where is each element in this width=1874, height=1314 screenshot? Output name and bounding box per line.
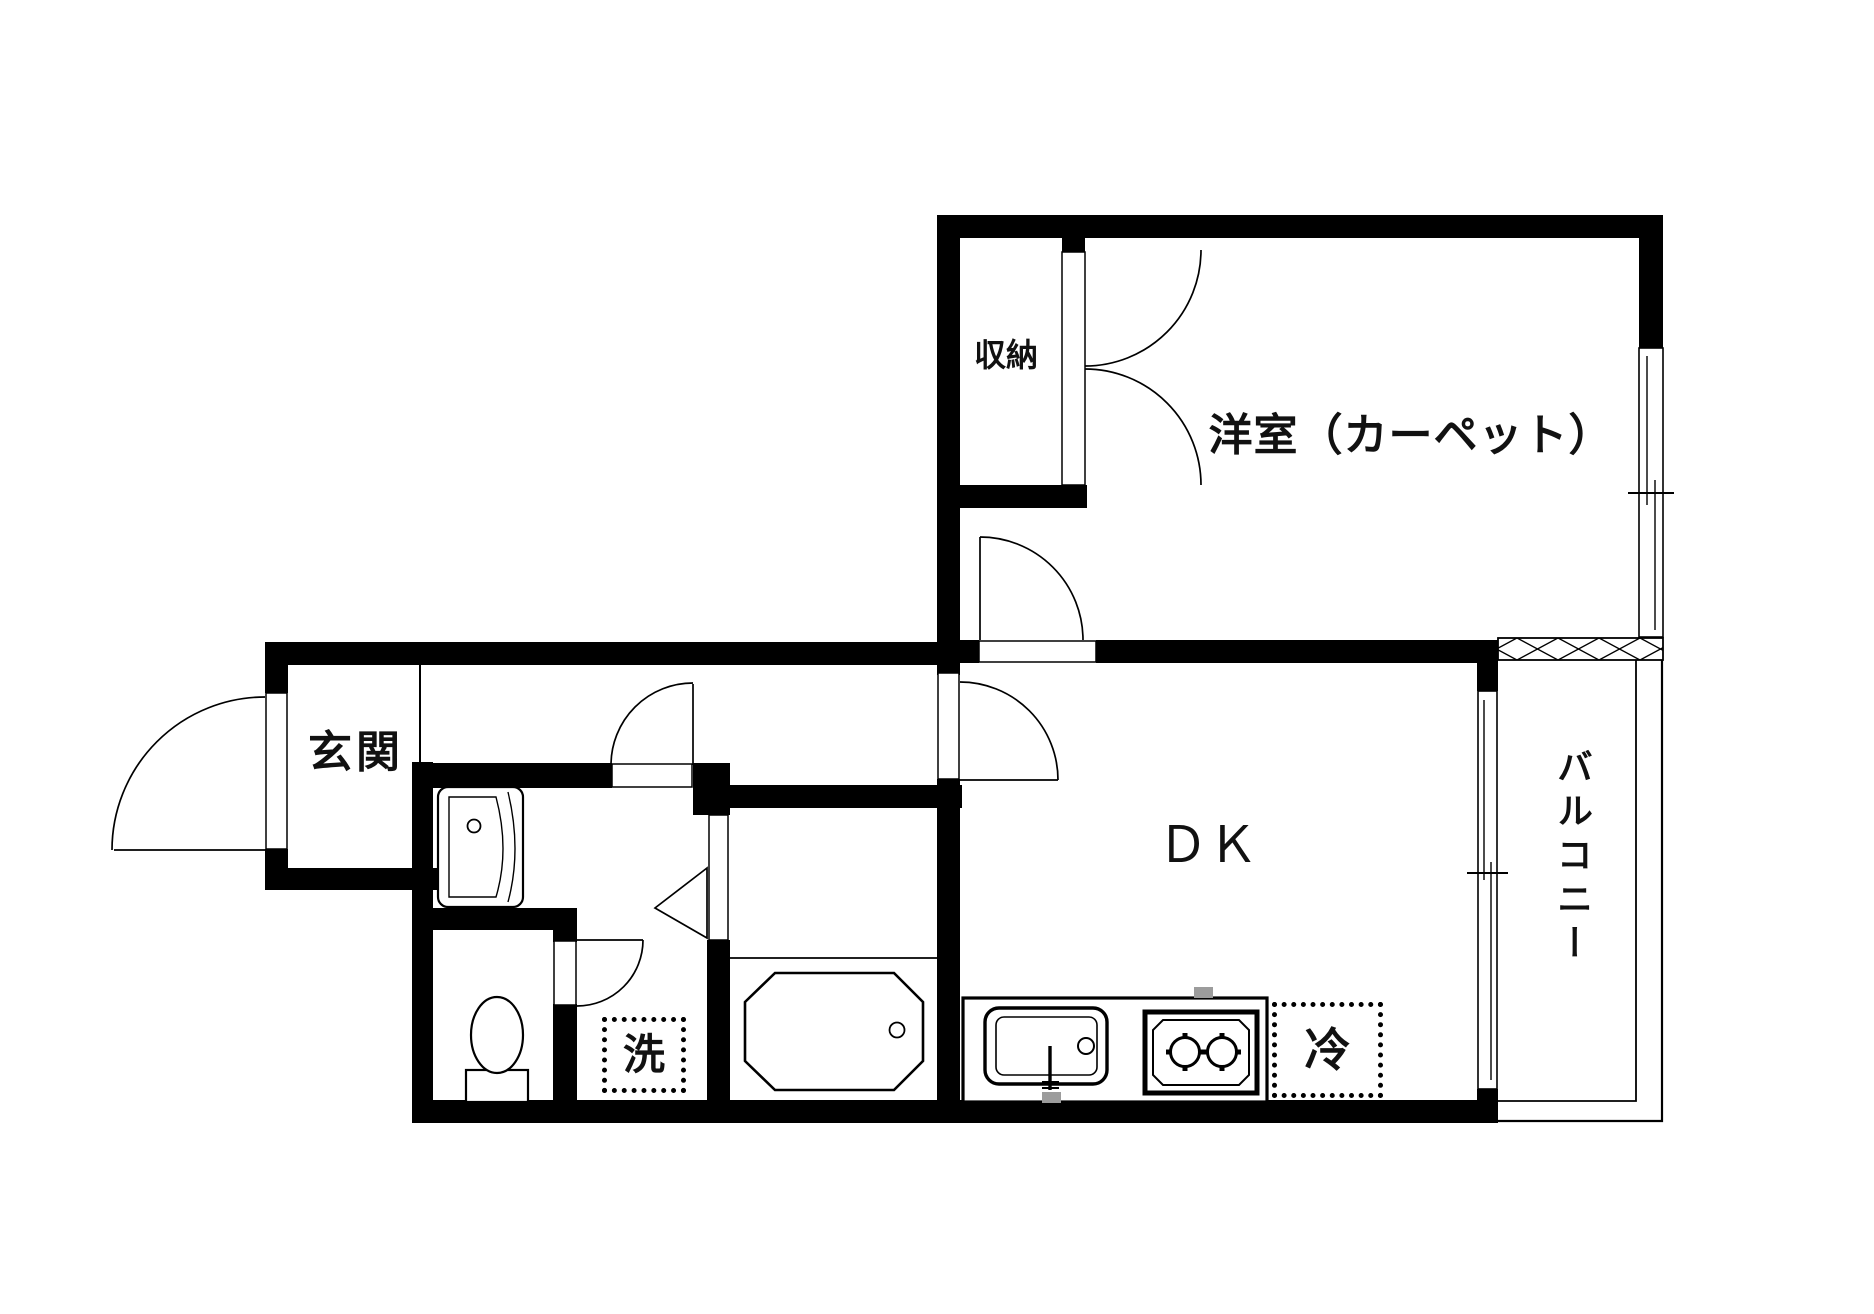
wall-bath-top (730, 785, 962, 808)
wall-hall-top (265, 642, 960, 665)
washer-space-box: 洗 (602, 1017, 686, 1093)
label-balcony: バルコニー (1554, 748, 1590, 968)
partition-hatch (1498, 638, 1663, 660)
wall-entry-left-upper (265, 642, 288, 693)
label-washer: 洗 (623, 1034, 665, 1076)
wall-toilet-right-upper (553, 930, 577, 942)
wall-closet-jamb (1062, 238, 1085, 252)
wall-bath-corner (693, 763, 730, 815)
wall-dk-left-lower (937, 779, 960, 1103)
dk-door (960, 682, 1058, 780)
kitchen-counter (963, 987, 1267, 1103)
wall-south-seg2 (1096, 640, 1498, 663)
wall-washroom-top (433, 763, 612, 788)
vanity-sink (438, 787, 523, 907)
entrance-door (112, 697, 265, 850)
toilet-door-opening (554, 941, 576, 1005)
entry-door-opening (266, 693, 287, 849)
western-dk-door-opening (979, 641, 1096, 662)
dk-entry-opening (938, 673, 959, 779)
wall-upper-left (937, 215, 960, 663)
walls (265, 215, 1663, 1123)
floor-plan-drawing (0, 0, 1874, 1314)
dk-window (1467, 691, 1508, 1089)
floor-plan-canvas: 収納 洋室（カーペット） 玄関 ＤＫ バルコニー 洗 冷 (0, 0, 1874, 1314)
washroom-door (611, 683, 693, 765)
wall-bottom (412, 1100, 1498, 1123)
wall-south-seg1 (960, 640, 979, 663)
wall-closet-bottom (937, 485, 1087, 508)
bath-folding-door (655, 868, 707, 938)
wall-west (412, 762, 433, 1123)
wall-bath-left-lower (707, 940, 730, 1103)
label-storage: 収納 (974, 339, 1038, 371)
closet-double-door (1085, 250, 1201, 485)
label-refrigerator: 冷 (1305, 1027, 1351, 1073)
wall-dk-right-lower (1477, 1089, 1498, 1123)
wall-toilet-right-lower (553, 1004, 577, 1103)
wall-top (937, 215, 1663, 238)
label-dining-kitchen: ＤＫ (1158, 820, 1258, 870)
western-room-door (980, 537, 1083, 640)
western-room-window (1628, 348, 1674, 637)
label-western-room: 洋室（カーペット） (1209, 414, 1614, 458)
wall-dk-right-upper (1477, 660, 1498, 691)
bathtub (745, 973, 923, 1090)
wall-upper-right (1639, 238, 1663, 348)
wall-toilet-top (412, 908, 577, 930)
toilet-door (577, 940, 643, 1006)
label-entrance: 玄関 (308, 731, 404, 775)
refrigerator-space-box: 冷 (1272, 1002, 1383, 1098)
toilet (466, 997, 528, 1102)
wall-entry-bottom (265, 868, 437, 890)
closet-door-panel (1062, 252, 1085, 485)
washroom-door-opening (612, 764, 692, 787)
gas-outlet-mark (1194, 987, 1213, 998)
bath-door-panel (709, 815, 728, 940)
water-supply-mark (1042, 1092, 1061, 1103)
